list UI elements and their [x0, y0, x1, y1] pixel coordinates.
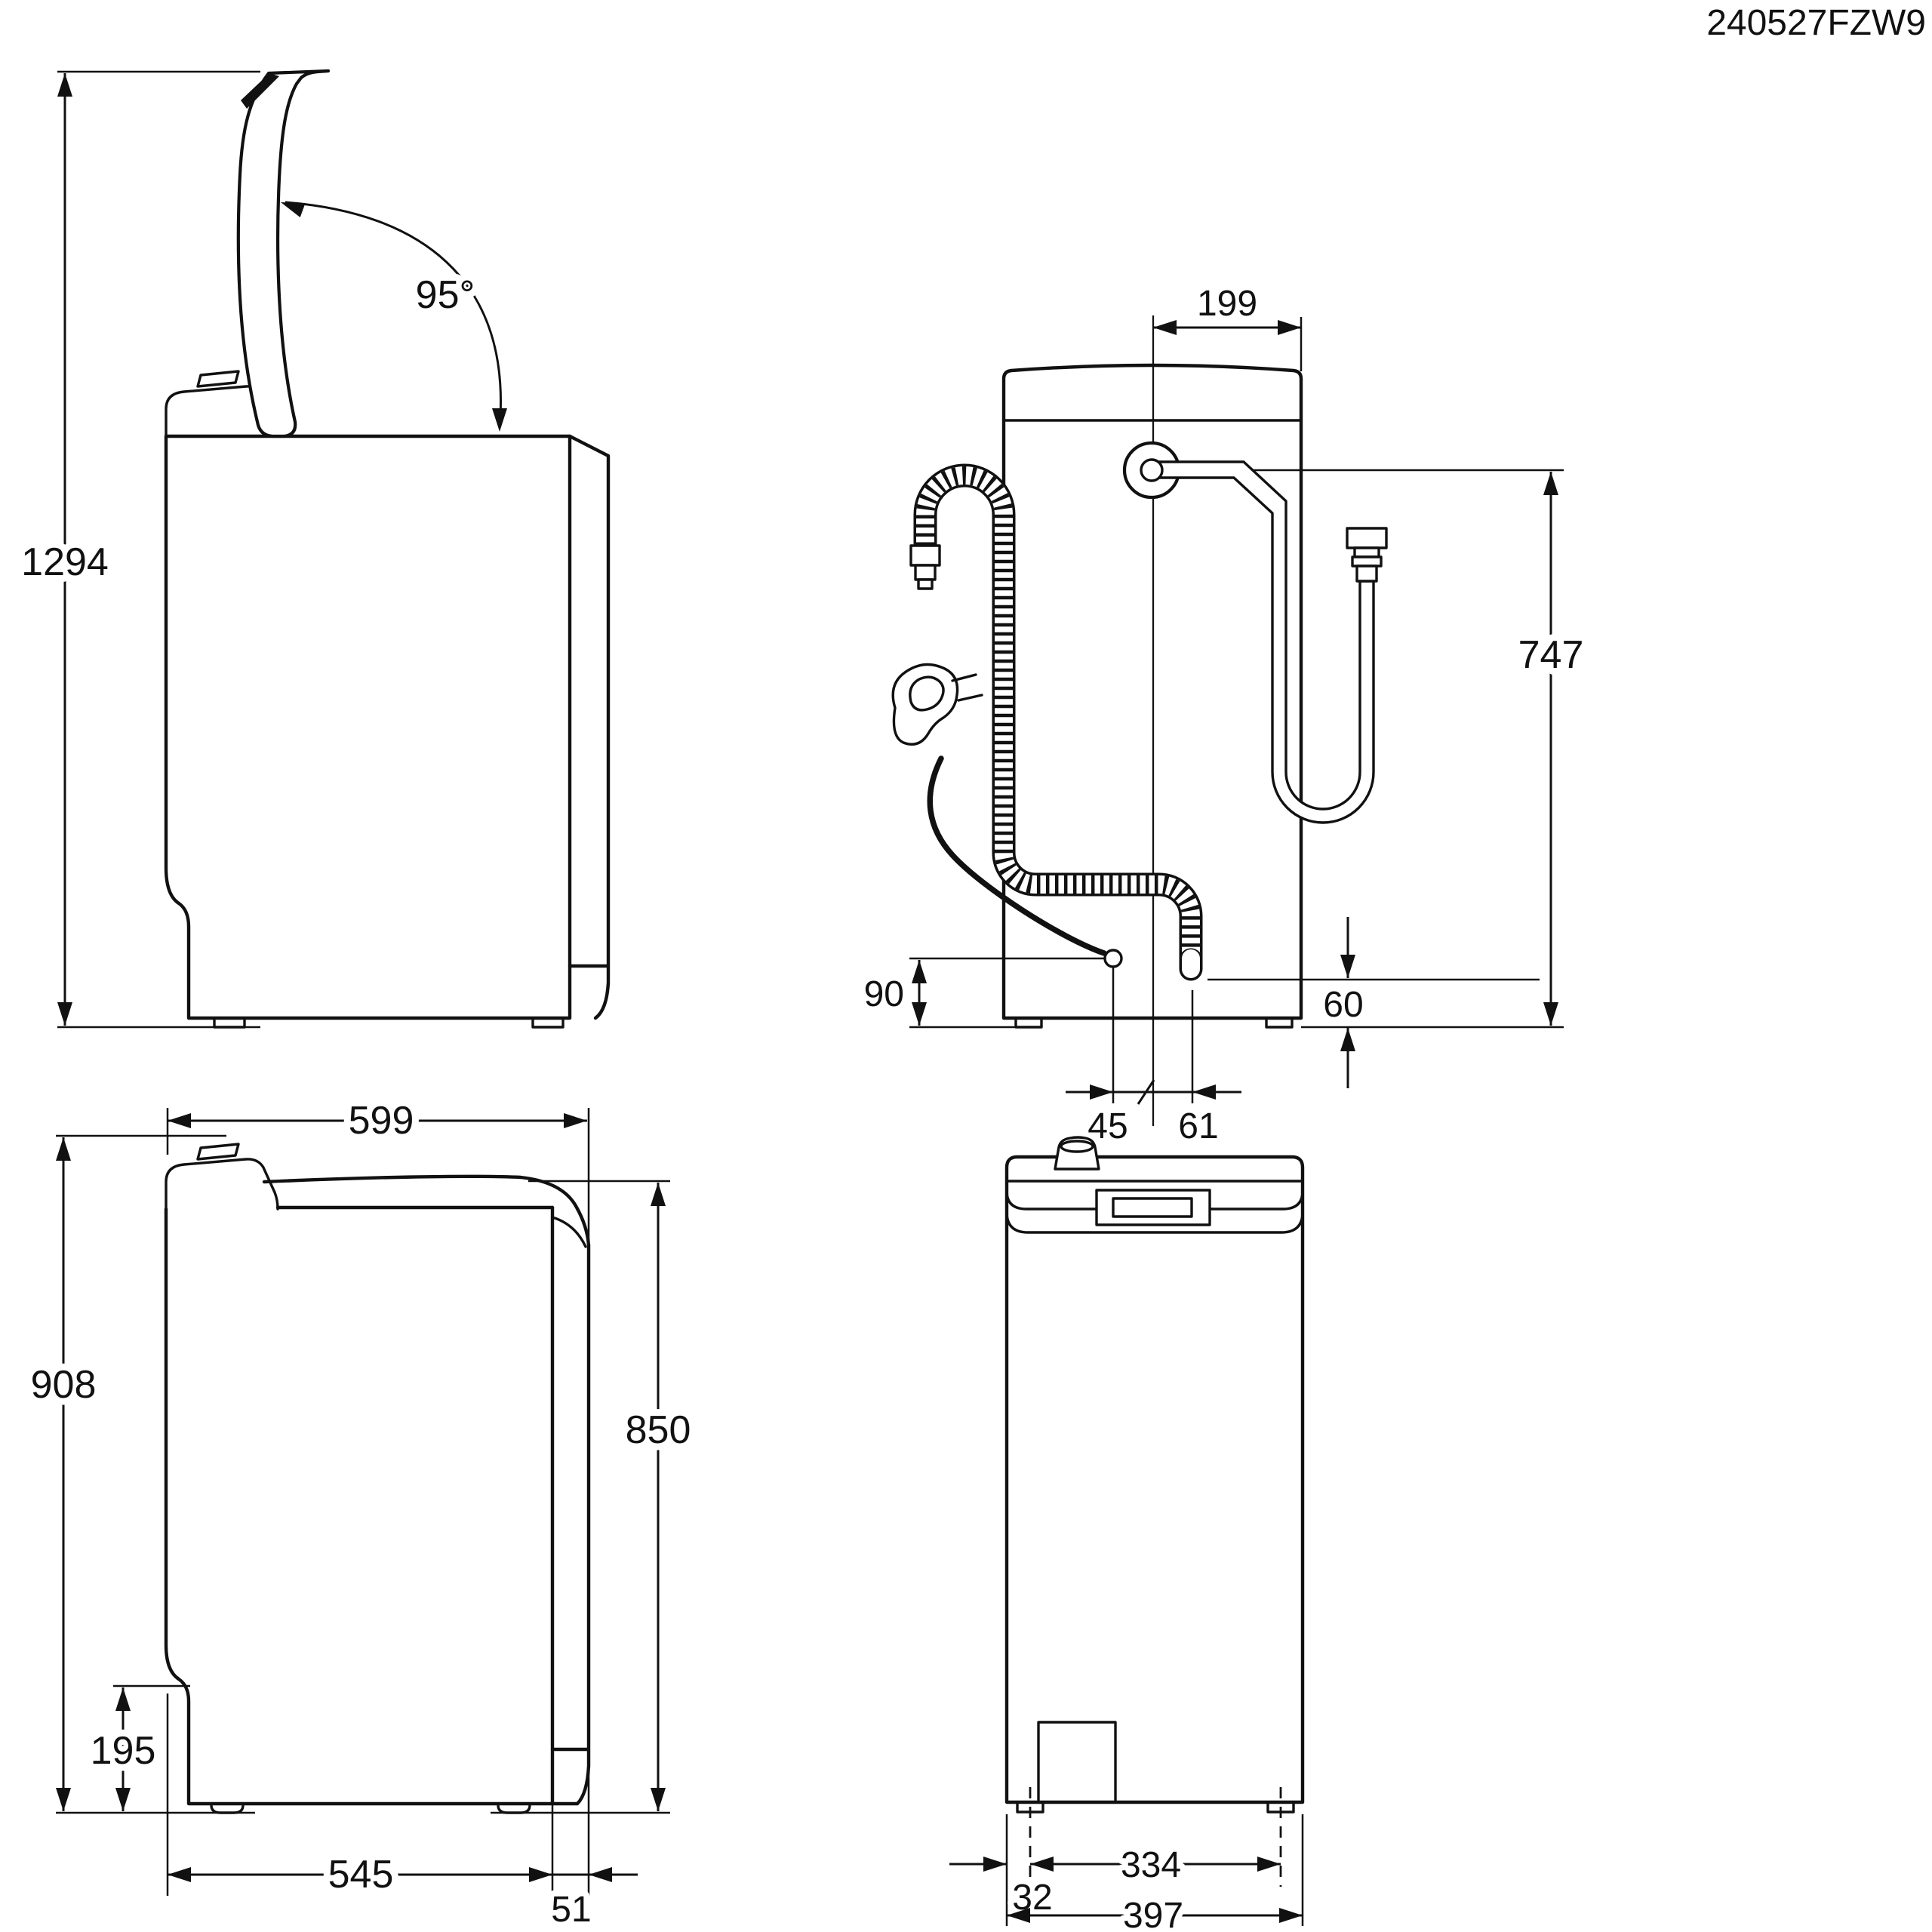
dimension-drawing: 1294 95° — [0, 0, 1932, 1932]
rear-side-panel — [570, 436, 608, 1018]
front-panel — [166, 436, 570, 1018]
dim-label-397: 397 — [1123, 1896, 1183, 1932]
dim-cord-height: 90 — [864, 960, 927, 1026]
power-button — [198, 371, 238, 386]
dim-feet-spacing: 334 — [1030, 1845, 1281, 1885]
view-side-lid-open: 1294 95° — [21, 71, 608, 1027]
front-and-bottom — [166, 1209, 577, 1804]
dim-overall-width: 599 — [168, 1099, 587, 1143]
dim-height-lid-open: 1294 — [21, 73, 109, 1026]
cabinet — [1007, 1157, 1303, 1802]
control-panel — [166, 1159, 278, 1209]
dim-inlet-height: 747 — [1518, 472, 1584, 1026]
dim-worktop-height: 850 — [626, 1183, 691, 1811]
service-hatch — [1038, 1722, 1115, 1802]
dim-lid-angle: 95° — [278, 195, 507, 432]
dim-label-1294: 1294 — [21, 540, 109, 584]
dim-label-90: 90 — [864, 974, 904, 1014]
lid-open — [238, 71, 328, 436]
view-rear-elevation: 334 32 397 — [949, 1137, 1303, 1932]
dim-base-recess: 195 — [91, 1687, 156, 1811]
dim-drain-clearance: 60 — [1323, 917, 1363, 1088]
drain-hose-fitting — [911, 546, 940, 589]
closed-lid-line — [264, 1177, 589, 1245]
control-knob-top — [1061, 1141, 1093, 1152]
dim-label-199: 199 — [1197, 284, 1257, 324]
power-button — [198, 1144, 238, 1159]
dim-label-95deg: 95° — [416, 273, 475, 317]
power-cord — [930, 758, 1104, 953]
rear-edge — [552, 1245, 589, 1804]
dim-label-32: 32 — [1012, 1878, 1052, 1918]
machine-body-rear-elevation — [1007, 1137, 1303, 1812]
dim-depths: 545 51 — [168, 1853, 638, 1930]
dim-overall-height: 908 — [31, 1137, 97, 1811]
water-inlet-port — [1141, 460, 1162, 481]
dim-inlet-offset: 199 — [1153, 284, 1301, 335]
dim-label-908: 908 — [31, 1363, 97, 1407]
dim-label-60: 60 — [1323, 985, 1363, 1025]
view-side-lid-closed: 599 908 850 195 545 — [31, 1099, 691, 1930]
lid-corner-bevel — [552, 1217, 586, 1247]
dim-label-334: 334 — [1121, 1845, 1181, 1885]
dim-label-599: 599 — [349, 1099, 414, 1143]
dim-label-51: 51 — [551, 1890, 591, 1930]
cord-grommet — [1105, 950, 1121, 967]
dim-label-61: 61 — [1178, 1106, 1218, 1146]
dim-label-545: 545 — [328, 1853, 394, 1897]
inlet-hose-assembly — [1124, 443, 1386, 823]
dim-label-45: 45 — [1088, 1106, 1128, 1146]
inlet-hose — [1152, 462, 1374, 823]
view-rear-connections: 199 747 90 60 45 61 — [864, 284, 1584, 1146]
dim-label-747: 747 — [1518, 633, 1584, 677]
dim-label-850: 850 — [626, 1408, 691, 1452]
machine-body-side-open — [166, 371, 608, 1027]
drain-hose — [925, 475, 1191, 969]
machine-body-side-closed — [166, 1144, 589, 1813]
drain-hose-assembly — [911, 475, 1191, 969]
dim-label-195: 195 — [91, 1729, 156, 1773]
drawing-code: 240527FZW9 — [1706, 3, 1926, 43]
technical-drawing-page: 1294 95° — [0, 0, 1932, 1932]
inlet-connector — [1347, 528, 1386, 581]
